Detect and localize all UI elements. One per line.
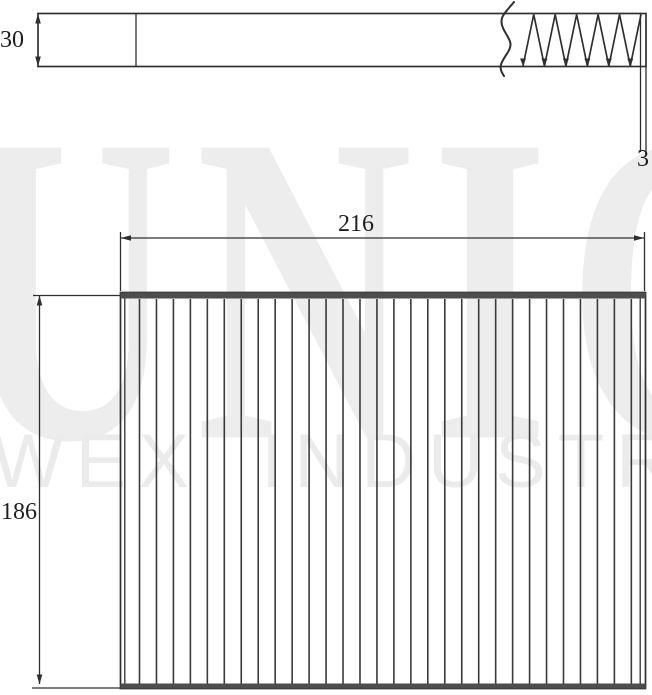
dim216-arrow-left (121, 235, 131, 241)
zigzag-valley-flare (520, 59, 526, 67)
zigzag-valley-flare (541, 59, 547, 67)
dim-label-edge-width: 3 (633, 147, 652, 171)
dim-label-side-height: 30 (0, 28, 36, 52)
filter-technical-drawing: UNIC WEX INDUSTRIES (0, 0, 652, 695)
side-view-outline (38, 14, 646, 67)
pleat-lines-group (140, 299, 632, 684)
zigzag-valley-flare (606, 59, 612, 67)
dim-label-overall-height: 186 (1, 500, 39, 524)
front-view-top-frame-band (121, 293, 646, 299)
zigzag-valley-flare (627, 59, 633, 67)
zigzag-valley-flares (520, 59, 633, 67)
dim30-arrow-up (35, 14, 41, 24)
dim30-arrow-down (35, 57, 41, 67)
front-view-bottom-frame-band (121, 684, 646, 689)
dim186-arrow-down (37, 675, 43, 685)
dim-label-overall-width: 216 (316, 212, 396, 236)
pleat-zigzag (523, 15, 641, 67)
dim216-arrow-right (634, 235, 644, 241)
drawing-svg (0, 0, 652, 695)
zigzag-valley-flare (584, 59, 590, 67)
front-view-outline (121, 293, 646, 689)
zigzag-valley-flare (563, 59, 569, 67)
dim186-arrow-up (37, 296, 43, 306)
